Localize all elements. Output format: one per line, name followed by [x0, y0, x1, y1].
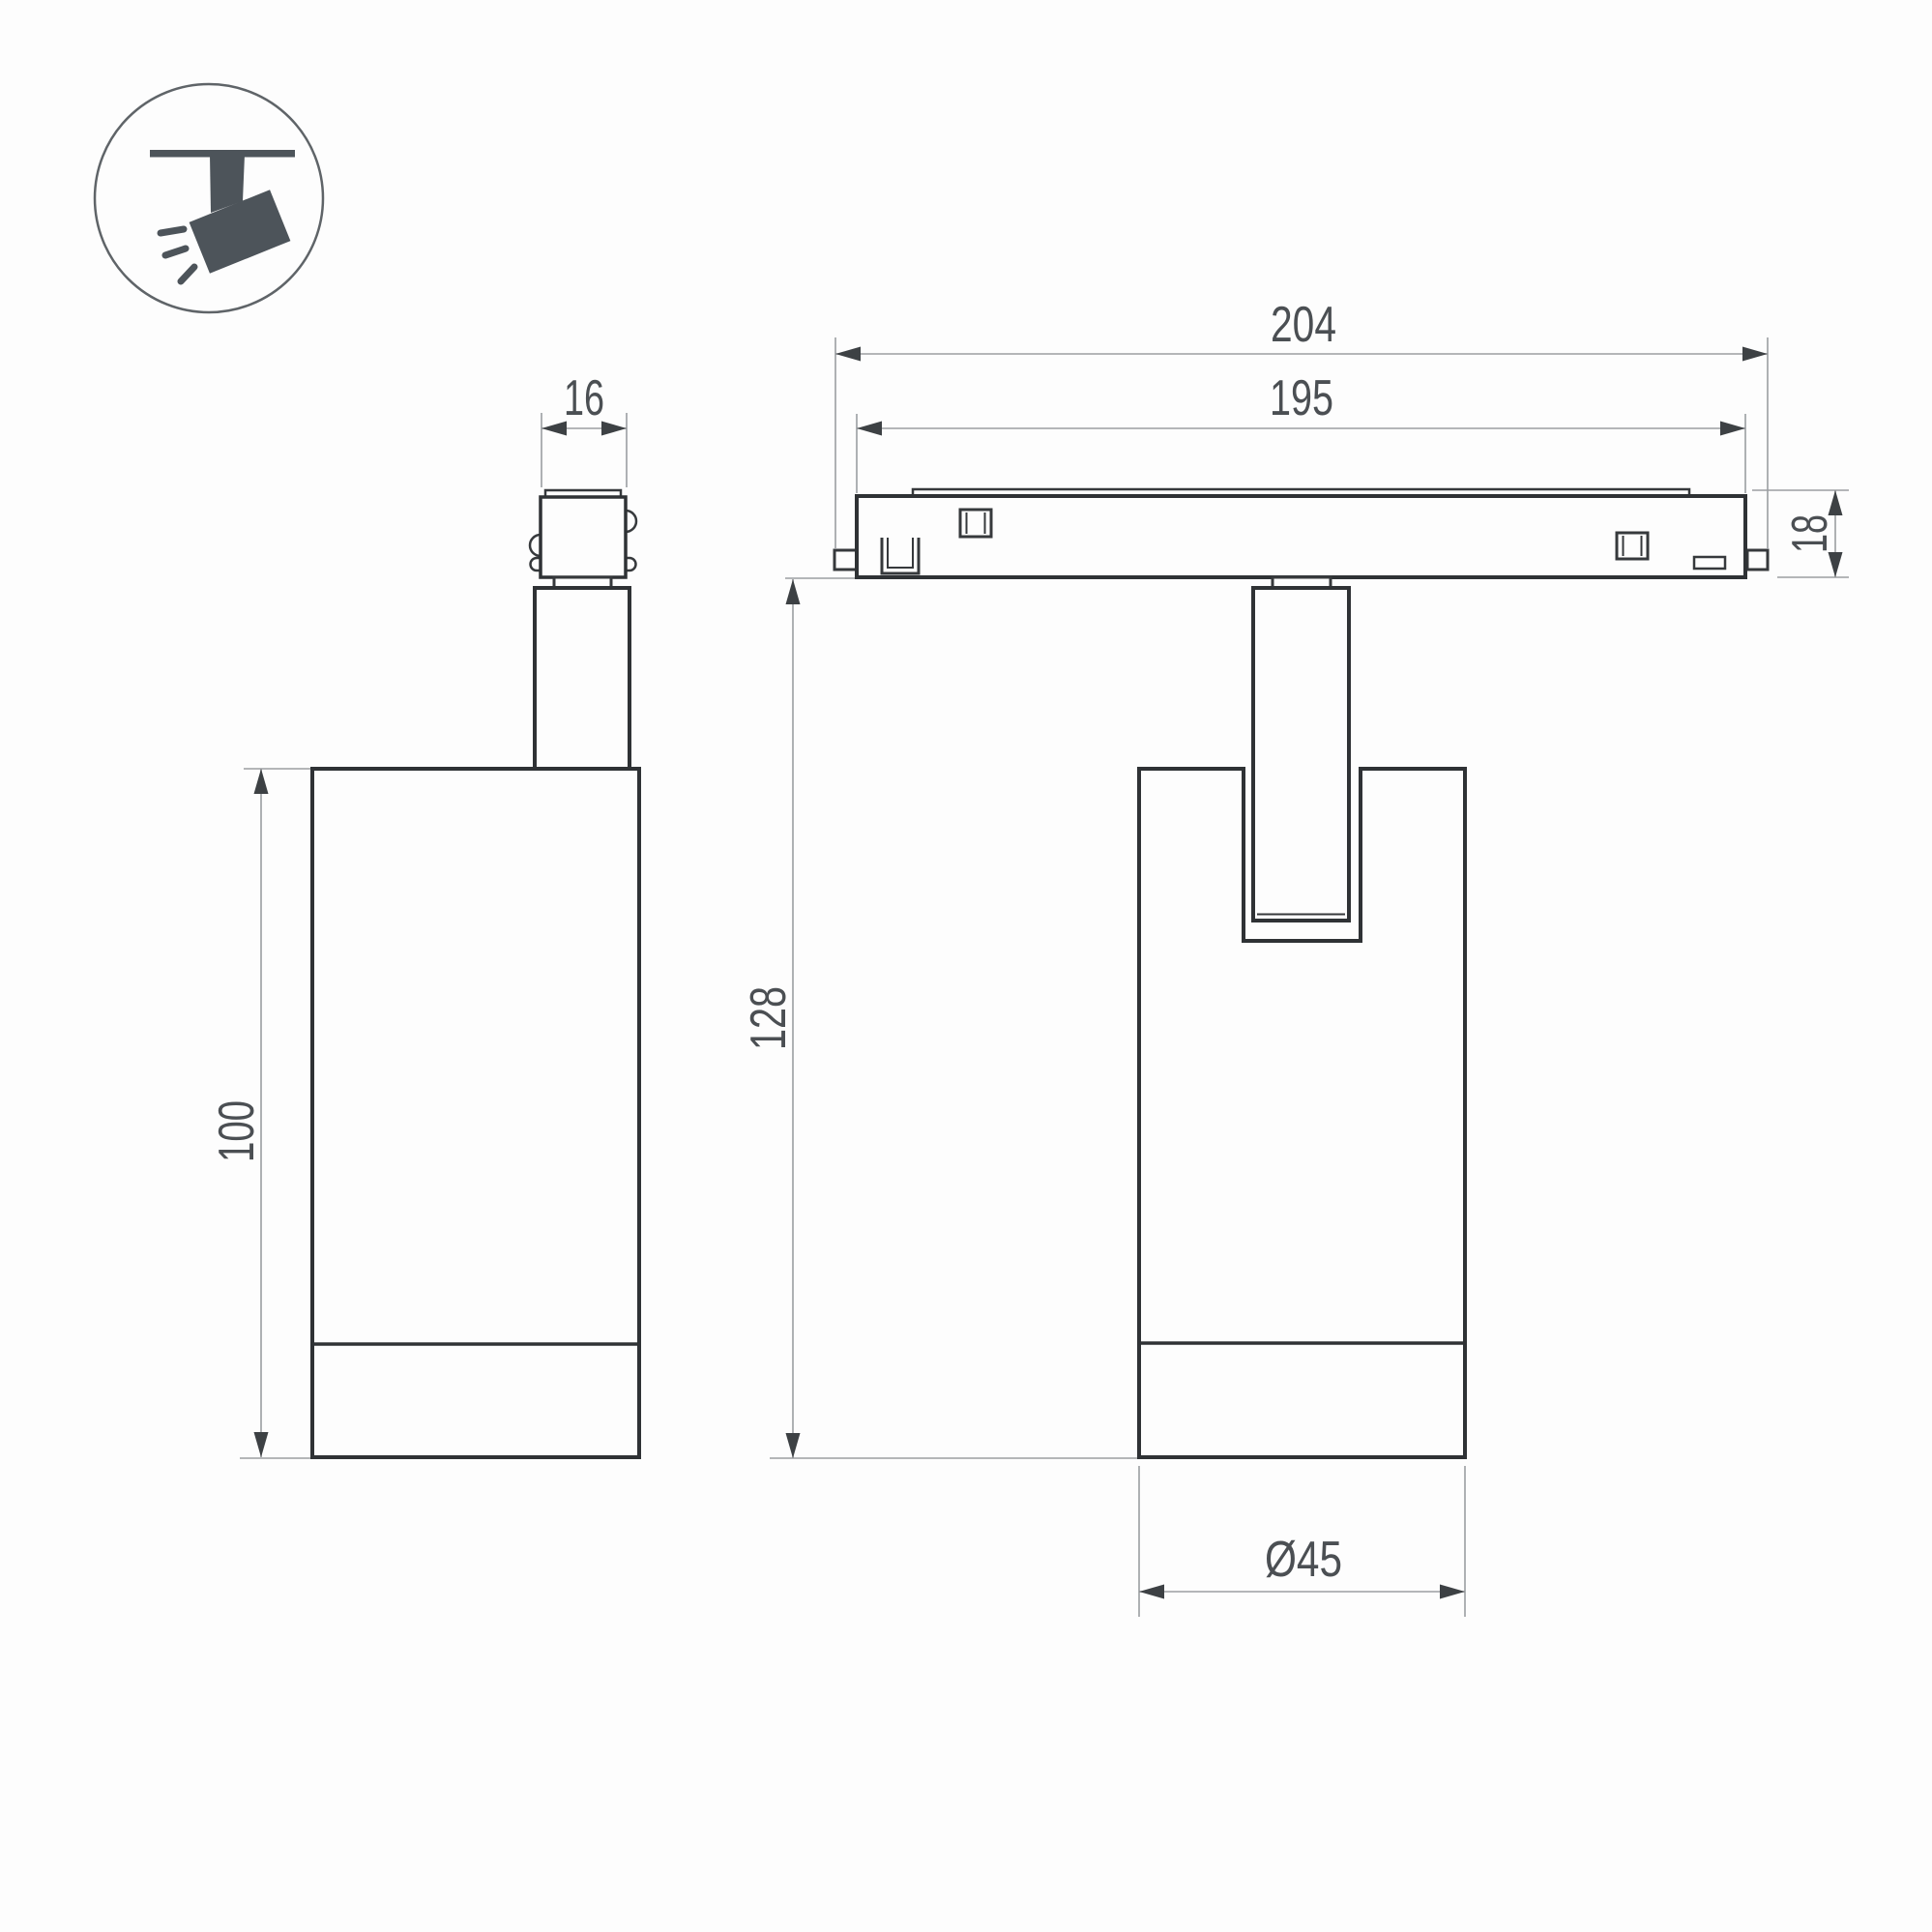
page: { "drawing": { "type": "technical-dimens…: [0, 0, 1932, 1932]
drawing-background: [0, 0, 1932, 1932]
dim-label-d45: Ø45: [1265, 1532, 1342, 1588]
front-stem-arm: [1253, 588, 1349, 921]
dim-label-195: 195: [1270, 370, 1333, 426]
dim-label-16: 16: [564, 370, 604, 426]
track-end-tab-right: [1747, 550, 1768, 570]
track-end-tab-left: [834, 550, 857, 570]
side-track-adapter: [541, 497, 626, 577]
side-lamp-body: [312, 769, 639, 1457]
dim-label-128: 128: [741, 986, 797, 1050]
side-stem-arm: [535, 588, 629, 769]
icon-circle: [95, 84, 323, 312]
dim-label-18: 18: [1782, 514, 1838, 553]
legend-icon: [95, 84, 323, 312]
dim-label-204: 204: [1271, 297, 1336, 353]
dim-label-100: 100: [209, 1100, 265, 1162]
technical-drawing: 16 100 204 195: [0, 0, 1932, 1932]
icon-light-ray: [161, 229, 184, 233]
